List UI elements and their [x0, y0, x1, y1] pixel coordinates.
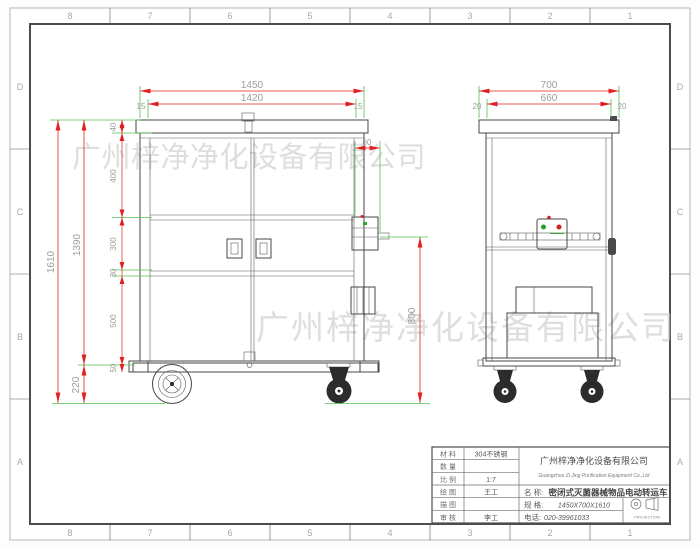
- watermark-lower: 广州梓净净化设备有限公司: [256, 309, 676, 346]
- zone-left-d: D: [17, 82, 24, 92]
- zone-bottom-1: 8: [67, 528, 72, 538]
- dim-latch-box-width: 60: [363, 138, 372, 147]
- dim-side-inner-depth: 660: [541, 93, 558, 104]
- tb-row-label-checked: 审 核: [440, 513, 456, 522]
- tb-phone-label: 电话:: [524, 512, 541, 522]
- zone-right-d: D: [677, 82, 684, 92]
- cad-sheet: 8 7 6 5 4 3 2 1 8 7 6 5 4 3 2 1 D C B A …: [0, 0, 700, 548]
- dim-side-edge-left: 20: [473, 102, 482, 111]
- tb-spec-value: 1450X700X1610: [558, 503, 610, 510]
- dim-seg-mid: 300: [109, 237, 118, 251]
- stop-button: [557, 225, 562, 230]
- tb-row-label-drawn: 绘 图: [440, 488, 456, 497]
- power-indicator: [547, 216, 551, 220]
- zone-top-1: 8: [67, 11, 72, 21]
- tb-phone-value: 020-39961033: [544, 515, 589, 522]
- dim-seg-upper: 400: [109, 169, 118, 183]
- zone-bottom-7: 2: [547, 528, 552, 538]
- dim-seg-lid: 40: [109, 122, 118, 131]
- tb-company-name-cn: 广州梓净净化设备有限公司: [540, 455, 648, 466]
- tb-spec-label: 规 格:: [524, 500, 543, 510]
- indicator-dot-red: [361, 215, 364, 218]
- zone-right-a: A: [677, 457, 683, 467]
- watermark-upper: 广州梓净净化设备有限公司: [72, 141, 426, 174]
- tb-row-value-checked: 李工: [484, 513, 498, 522]
- drawing-canvas: 8 7 6 5 4 3 2 1 8 7 6 5 4 3 2 1 D C B A …: [0, 0, 700, 548]
- zone-left-a: A: [17, 457, 23, 467]
- zone-top-5: 4: [387, 11, 392, 21]
- tb-product-name: 密闭式灭菌器械物品电动转运车: [547, 488, 668, 498]
- tb-row-value-scale: 1:7: [486, 477, 496, 484]
- indicator-dot-green: [363, 222, 367, 225]
- dim-edge-right: 15: [354, 102, 363, 111]
- tb-name-label: 名 称:: [524, 487, 543, 497]
- dim-edge-left: 15: [137, 102, 146, 111]
- zone-left-c: C: [17, 207, 24, 217]
- dim-seg-rail: 30: [109, 268, 118, 277]
- dim-seg-lower: 500: [109, 314, 118, 328]
- dim-front-width: 1450: [241, 80, 264, 91]
- tb-row-label-scale: 比 例: [440, 475, 456, 484]
- zone-right-b: B: [677, 332, 683, 342]
- dim-seg-base: 50: [109, 363, 118, 372]
- zone-top-8: 1: [627, 11, 632, 21]
- start-button: [541, 225, 546, 230]
- zone-top-4: 5: [307, 11, 312, 21]
- side-pull-handle: [608, 238, 616, 255]
- zone-bottom-4: 5: [307, 528, 312, 538]
- dim-total-height: 1610: [46, 250, 57, 273]
- tb-row-label-quantity: 数 量: [440, 462, 456, 471]
- zone-top-6: 3: [467, 11, 472, 21]
- dim-body-height: 1390: [72, 233, 83, 256]
- tb-row-value-drawn: 王工: [484, 489, 498, 497]
- dim-side-depth: 700: [541, 80, 558, 91]
- dim-front-inner-width: 1420: [241, 93, 264, 104]
- zone-left-b: B: [17, 332, 23, 342]
- dim-caster-height: 220: [71, 376, 82, 393]
- dim-bar-height: 800: [407, 307, 418, 324]
- zone-top-7: 2: [547, 11, 552, 21]
- zone-bottom-8: 1: [627, 528, 632, 538]
- tb-row-value-material: 304不锈钢: [475, 450, 508, 459]
- zone-top-3: 6: [227, 11, 232, 21]
- tb-company-name-en: Guangzhou Zi Jing Purification Equipment…: [539, 473, 650, 479]
- fixed-wheel: [153, 365, 192, 404]
- zone-right-c: C: [677, 207, 684, 217]
- tb-projection-label: PROJECTION: [634, 515, 660, 520]
- tb-row-label-material: 材 料: [440, 450, 456, 459]
- zone-bottom-2: 7: [147, 528, 152, 538]
- dim-side-edge-right: 20: [618, 102, 627, 111]
- zone-bottom-5: 4: [387, 528, 392, 538]
- zone-bottom-6: 3: [467, 528, 472, 538]
- swivel-caster-front: [327, 363, 352, 404]
- zone-bottom-3: 6: [227, 528, 232, 538]
- zone-top-2: 7: [147, 11, 152, 21]
- tb-row-label-traced: 描 图: [440, 500, 456, 509]
